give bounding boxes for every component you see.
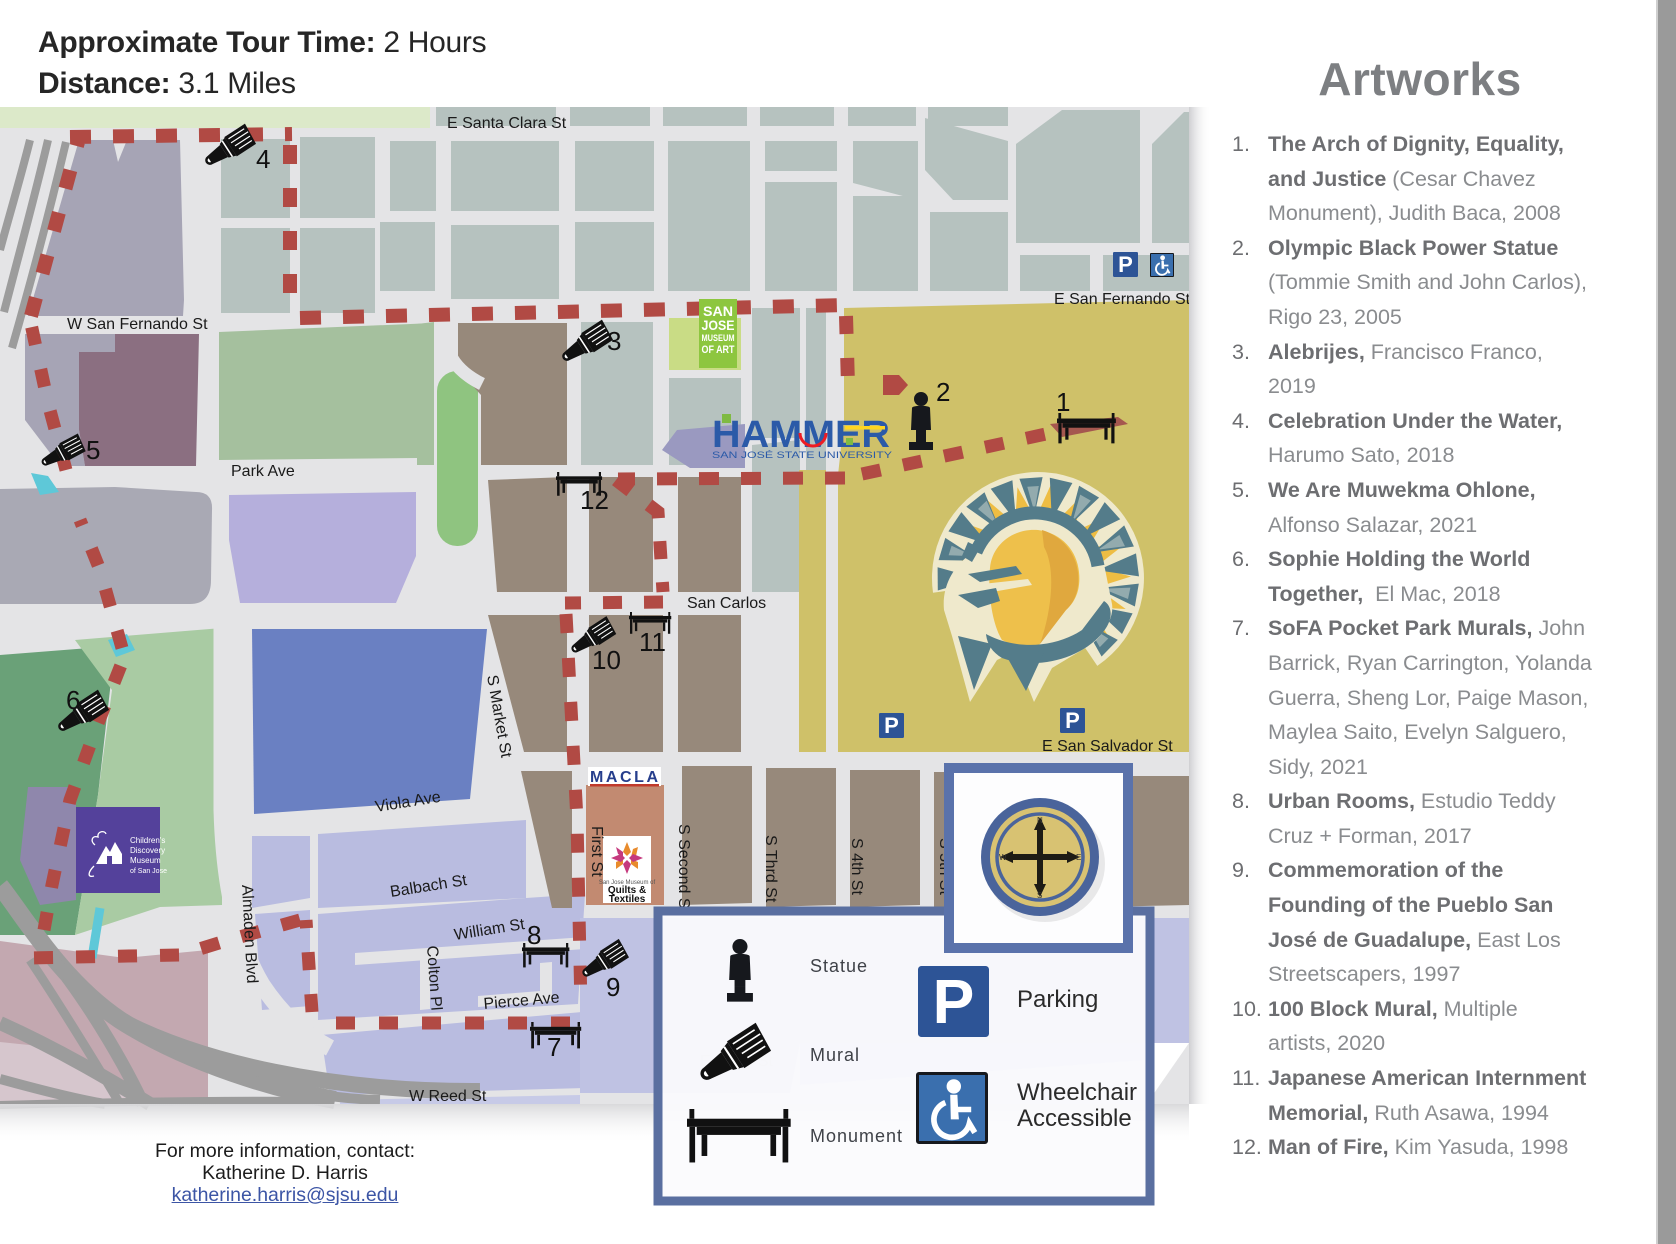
svg-text:12: 12 [580,485,609,515]
svg-text:First St: First St [588,826,605,877]
svg-text:MUSEUM: MUSEUM [702,333,735,343]
svg-text:5: 5 [86,435,100,465]
svg-text:Children's: Children's [130,836,165,845]
svg-text:JOSE: JOSE [702,317,735,333]
svg-text:2: 2 [936,377,950,407]
svg-text:1: 1 [1056,387,1070,417]
svg-text:W: W [999,853,1007,862]
svg-text:Monument: Monument [810,1126,903,1146]
svg-text:Museum: Museum [130,856,161,865]
svg-text:6: 6 [66,685,80,715]
svg-text:OF ART: OF ART [702,344,735,356]
svg-text:Parking: Parking [1017,986,1098,1013]
svg-text:S Thrd St: S Thrd St [762,835,779,903]
svg-text:3: 3 [607,326,621,356]
svg-text:of San Jose: of San Jose [130,868,167,875]
svg-text:11: 11 [639,627,666,657]
svg-text:San Carlos: San Carlos [687,595,766,612]
svg-text:S: S [1037,891,1042,900]
svg-text:10: 10 [592,645,621,675]
svg-text:Statue: Statue [810,956,868,976]
svg-text:E Santa Clara St: E Santa Clara St [447,115,567,132]
svg-text:9: 9 [606,972,620,1002]
svg-text:4: 4 [256,144,270,174]
svg-text:S 4th St: S 4th St [848,838,865,895]
svg-text:E San Fernando St: E San Fernando St [1054,291,1191,308]
svg-text:W San Fernando St: W San Fernando St [67,316,208,333]
svg-text:7: 7 [547,1032,561,1062]
svg-text:Wheelchair: Wheelchair [1017,1079,1137,1106]
svg-text:SAN JOSÉ STATE UNIVERSITY: SAN JOSÉ STATE UNIVERSITY [712,450,892,460]
svg-text:W Reed St: W Reed St [409,1088,487,1105]
svg-text:E San Salvador St: E San Salvador St [1042,738,1173,755]
svg-text:Discovery: Discovery [130,846,165,855]
svg-text:Park Ave: Park Ave [231,463,295,480]
svg-text:S Second St: S Second St [675,824,692,914]
svg-text:MACLA: MACLA [590,769,658,786]
svg-text:Textiles: Textiles [609,894,646,905]
svg-text:N: N [1037,816,1043,825]
svg-text:8: 8 [527,920,541,950]
svg-text:Mural: Mural [810,1045,860,1065]
svg-text:E: E [1076,853,1081,862]
svg-text:Accessible: Accessible [1017,1105,1132,1132]
